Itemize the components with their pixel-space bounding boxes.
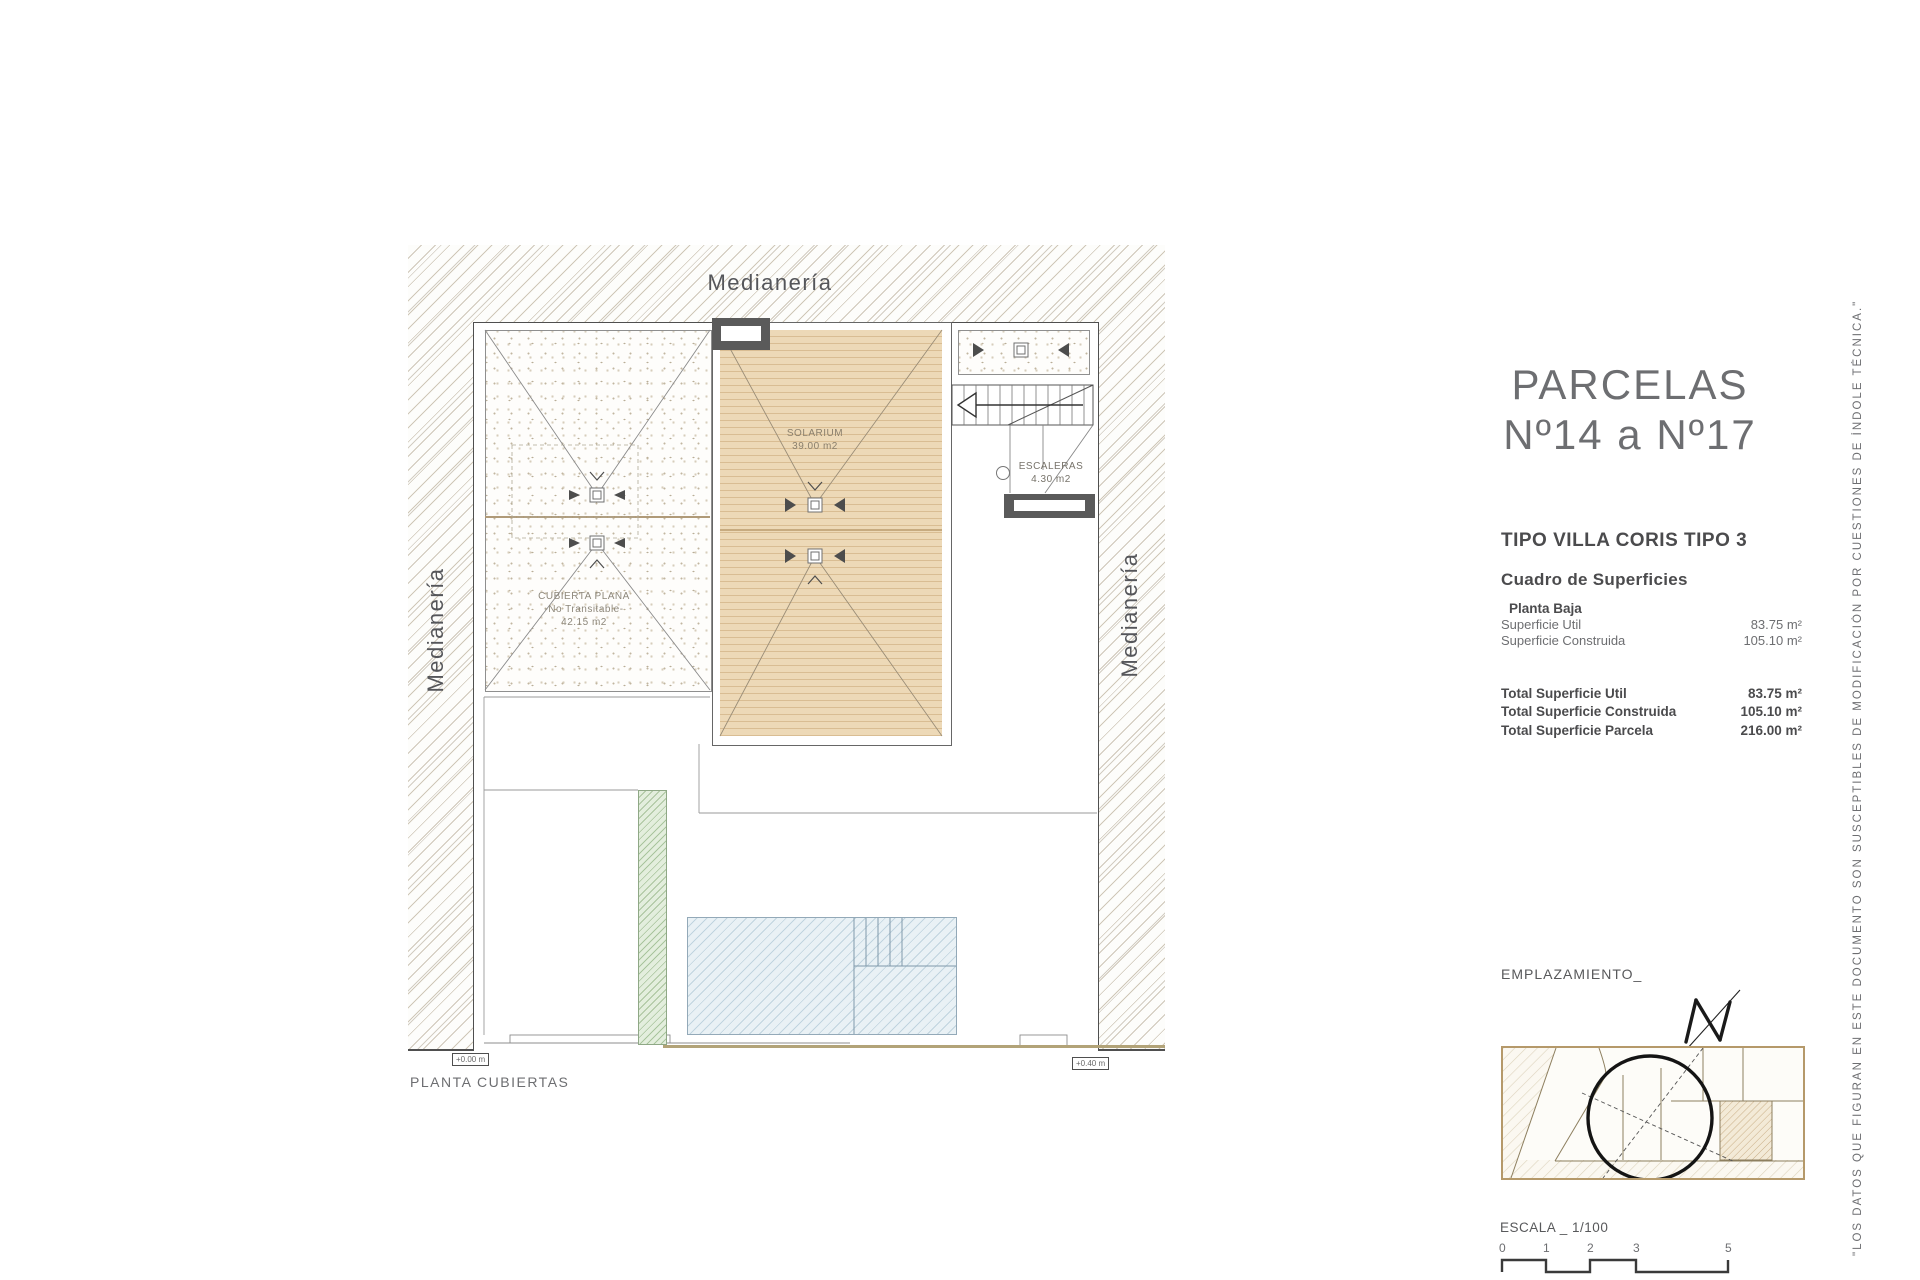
surface-table-section: Planta Baja (1509, 601, 1582, 616)
terrace-edge-line (663, 1045, 1165, 1048)
surface-total-value: 83.75 m² (1700, 686, 1802, 701)
type-heading: TIPO VILLA CORIS TIPO 3 (1501, 530, 1747, 552)
flat-roof-label-line2: -No Transitable- (514, 603, 654, 616)
party-wall-label-left: Medianería (423, 530, 449, 730)
skylight-box-stairs (1004, 494, 1095, 518)
technical-disclaimer: "LOS DATOS QUE FIGURAN EN ESTE DOCUMENTO… (1852, 328, 1864, 1256)
roof-strip-top-right (958, 330, 1090, 375)
stairs-label-name: ESCALERAS (1001, 460, 1101, 473)
surface-total-value: 216.00 m² (1700, 723, 1802, 738)
scale-bar: 0 1 2 3 5 (1498, 1238, 1742, 1278)
location-label: EMPLAZAMIENTO_ (1501, 966, 1642, 982)
surface-total-label: Total Superficie Construida (1501, 704, 1676, 719)
party-wall-label-top: Medianería (630, 270, 910, 296)
scale-tick: 0 (1499, 1241, 1506, 1255)
level-marker-right: +0.40 m (1072, 1057, 1109, 1070)
garden-strip (638, 790, 667, 1045)
scale-tick: 1 (1543, 1241, 1550, 1255)
solarium-deck (720, 330, 942, 736)
sheet-title-line1: PARCELAS (1480, 360, 1780, 410)
party-wall-label-right: Medianería (1117, 515, 1143, 715)
flat-roof-label-line1: CUBIERTA PLANA (514, 590, 654, 603)
skylight-box-top (712, 318, 770, 350)
stairs-label-area: 4.30 m2 (1001, 473, 1101, 486)
surface-table-title: Cuadro de Superficies (1501, 570, 1688, 590)
flat-roof-area (485, 330, 712, 692)
surface-row-value: 105.10 m² (1700, 633, 1802, 648)
pool-steps-lines (688, 918, 956, 1034)
surface-row-value: 83.75 m² (1700, 617, 1802, 632)
surface-total-label: Total Superficie Parcela (1501, 723, 1653, 738)
scale-tick: 2 (1587, 1241, 1594, 1255)
stairs-label: ESCALERAS 4.30 m2 (1001, 460, 1101, 486)
surface-row-label: Superficie Construida (1501, 633, 1625, 648)
location-map-drawing (1503, 1048, 1803, 1178)
solarium-label: SOLARIUM 39.00 m2 (745, 427, 885, 453)
level-marker-left: +0.00 m (452, 1053, 489, 1066)
plan-caption: PLANTA CUBIERTAS (410, 1074, 569, 1090)
location-map (1501, 1046, 1805, 1180)
sheet-title: PARCELAS Nº14 a Nº17 (1480, 360, 1780, 460)
flat-roof-label-line3: 42.15 m2 (514, 616, 654, 629)
flat-roof-label: CUBIERTA PLANA -No Transitable- 42.15 m2 (514, 590, 654, 629)
ground-line-left (408, 1049, 473, 1051)
scale-tick: 3 (1633, 1241, 1640, 1255)
surface-total-label: Total Superficie Util (1501, 686, 1627, 701)
drawing-sheet: Medianería Medianería Medianería (0, 0, 1920, 1280)
surface-total-value: 105.10 m² (1700, 704, 1802, 719)
solarium-room (712, 322, 952, 746)
sheet-title-line2: Nº14 a Nº17 (1480, 410, 1780, 460)
pool-area (687, 917, 957, 1035)
surface-row-label: Superficie Util (1501, 617, 1581, 632)
ground-line-right (1095, 1049, 1165, 1051)
north-arrow-icon (1668, 988, 1758, 1052)
solarium-label-name: SOLARIUM (745, 427, 885, 440)
solarium-label-area: 39.00 m2 (745, 440, 885, 453)
scale-tick: 5 (1725, 1241, 1732, 1255)
scale-label: ESCALA _ 1/100 (1500, 1220, 1608, 1235)
